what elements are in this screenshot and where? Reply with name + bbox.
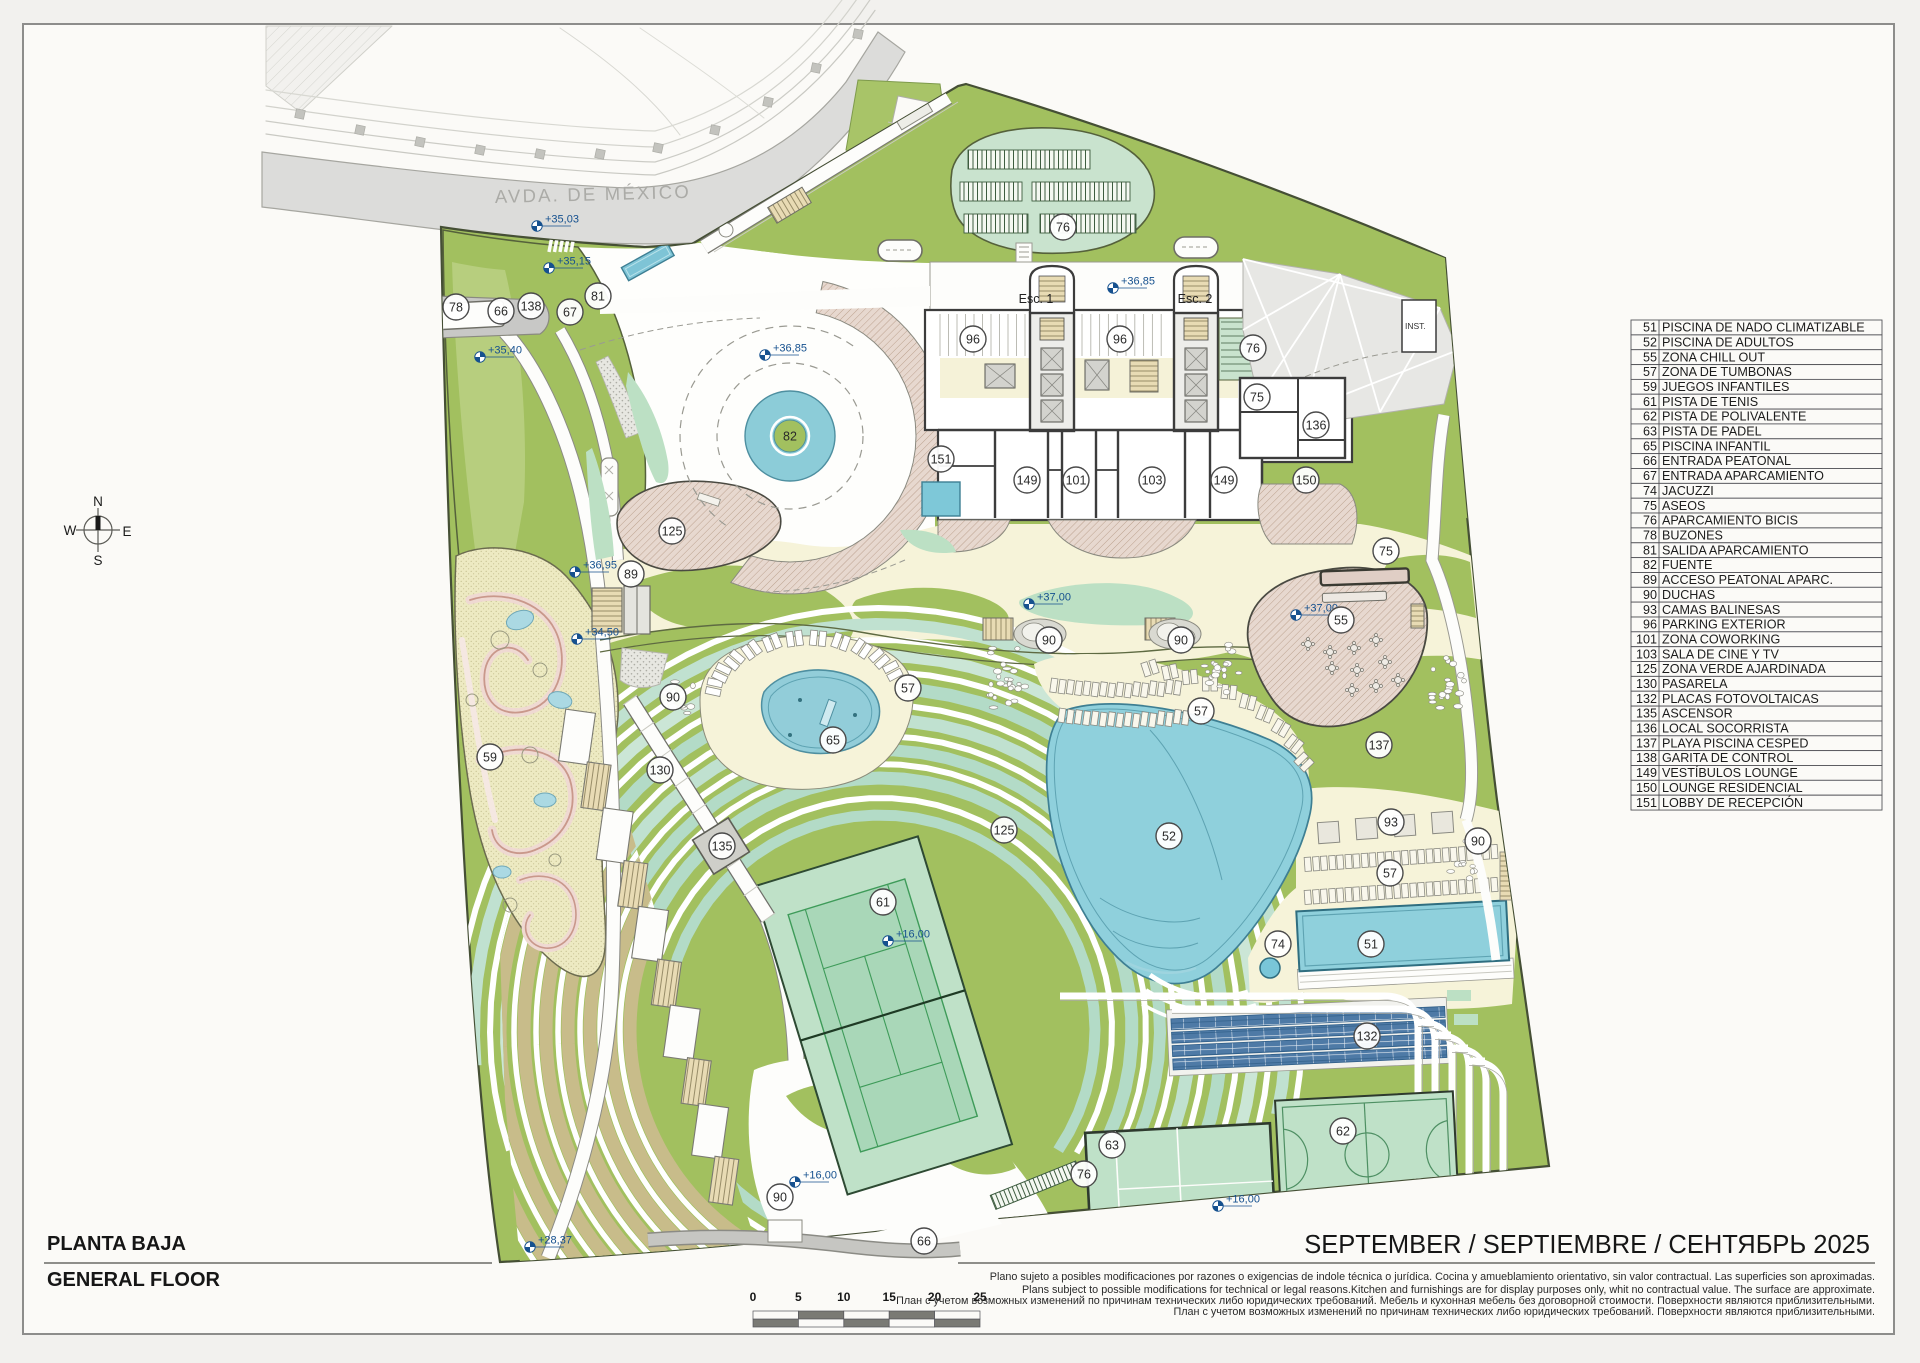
svg-text:89: 89 [624, 567, 638, 581]
svg-text:+35,03: +35,03 [545, 214, 579, 226]
svg-text:136: 136 [1636, 722, 1657, 736]
svg-text:90: 90 [1643, 588, 1657, 602]
svg-text:+36,85: +36,85 [1121, 276, 1155, 288]
svg-text:+16,00: +16,00 [803, 1170, 837, 1182]
svg-text:130: 130 [1636, 677, 1657, 691]
svg-text:+35,40: +35,40 [488, 345, 522, 357]
svg-text:APARCAMIENTO BICIS: APARCAMIENTO BICIS [1662, 514, 1798, 528]
svg-text:89: 89 [1643, 573, 1657, 587]
svg-text:125: 125 [662, 524, 683, 538]
svg-text:135: 135 [712, 839, 733, 853]
svg-text:PISCINA DE ADULTOS: PISCINA DE ADULTOS [1662, 336, 1794, 350]
svg-text:151: 151 [1636, 796, 1657, 810]
svg-text:96: 96 [966, 332, 980, 346]
svg-text:10: 10 [837, 1290, 851, 1304]
svg-text:ZONA COWORKING: ZONA COWORKING [1662, 632, 1780, 646]
svg-text:96: 96 [1643, 618, 1657, 632]
svg-text:ZONA VERDE AJARDINADA: ZONA VERDE AJARDINADA [1662, 662, 1826, 676]
svg-text:138: 138 [1636, 751, 1657, 765]
svg-text:57: 57 [1643, 365, 1657, 379]
svg-text:125: 125 [994, 823, 1015, 837]
svg-text:52: 52 [1162, 829, 1176, 843]
svg-text:План с учетом возможных измене: План с учетом возможных изменений по при… [1173, 1306, 1875, 1318]
svg-text:GENERAL FLOOR: GENERAL FLOOR [47, 1269, 221, 1291]
svg-text:63: 63 [1105, 1138, 1119, 1152]
svg-text:BUZONES: BUZONES [1662, 529, 1723, 543]
svg-text:PISCINA INFANTIL: PISCINA INFANTIL [1662, 439, 1770, 453]
svg-text:0: 0 [750, 1290, 757, 1304]
svg-text:150: 150 [1296, 473, 1317, 487]
svg-text:PISTA DE TENIS: PISTA DE TENIS [1662, 395, 1758, 409]
svg-text:103: 103 [1636, 647, 1657, 661]
svg-text:151: 151 [931, 452, 952, 466]
svg-text:+28,37: +28,37 [538, 1235, 572, 1247]
svg-text:76: 76 [1643, 514, 1657, 528]
svg-text:93: 93 [1384, 815, 1398, 829]
svg-text:76: 76 [1246, 341, 1260, 355]
svg-text:57: 57 [1194, 704, 1208, 718]
svg-text:61: 61 [1643, 395, 1657, 409]
svg-text:SALA DE CINE Y TV: SALA DE CINE Y TV [1662, 647, 1779, 661]
svg-text:74: 74 [1271, 937, 1285, 951]
svg-text:+37,00: +37,00 [1037, 592, 1071, 604]
svg-text:125: 125 [1636, 662, 1657, 676]
svg-text:81: 81 [591, 289, 605, 303]
svg-text:57: 57 [901, 681, 915, 695]
svg-text:81: 81 [1643, 543, 1657, 557]
svg-text:PISTA DE POLIVALENTE: PISTA DE POLIVALENTE [1662, 410, 1806, 424]
svg-text:55: 55 [1643, 350, 1657, 364]
svg-text:66: 66 [917, 1234, 931, 1248]
svg-text:76: 76 [1077, 1167, 1091, 1181]
svg-text:78: 78 [449, 300, 463, 314]
svg-text:130: 130 [650, 763, 671, 777]
svg-text:66: 66 [494, 304, 508, 318]
svg-text:JACUZZI: JACUZZI [1662, 484, 1714, 498]
svg-text:59: 59 [1643, 380, 1657, 394]
svg-text:+16,00: +16,00 [1226, 1194, 1260, 1206]
svg-text:149: 149 [1214, 473, 1235, 487]
svg-text:+36,85: +36,85 [773, 343, 807, 355]
svg-text:61: 61 [876, 895, 890, 909]
svg-text:5: 5 [795, 1290, 802, 1304]
svg-text:PARKING EXTERIOR: PARKING EXTERIOR [1662, 618, 1786, 632]
svg-text:137: 137 [1369, 738, 1390, 752]
svg-text:57: 57 [1383, 866, 1397, 880]
svg-text:82: 82 [783, 430, 797, 444]
svg-text:ASEOS: ASEOS [1662, 499, 1705, 513]
svg-text:132: 132 [1357, 1029, 1378, 1043]
svg-text:SEPTEMBER / SEPTIEMBRE / СЕНТЯ: SEPTEMBER / SEPTIEMBRE / СЕНТЯБРЬ 2025 [1304, 1231, 1870, 1259]
svg-text:135: 135 [1636, 707, 1657, 721]
svg-text:PLACAS FOTOVOLTAICAS: PLACAS FOTOVOLTAICAS [1662, 692, 1819, 706]
svg-text:62: 62 [1336, 1124, 1350, 1138]
svg-text:62: 62 [1643, 410, 1657, 424]
svg-text:JUEGOS INFANTILES: JUEGOS INFANTILES [1662, 380, 1789, 394]
svg-text:55: 55 [1334, 613, 1348, 627]
svg-text:65: 65 [1643, 439, 1657, 453]
svg-text:101: 101 [1066, 473, 1087, 487]
svg-text:+34,50: +34,50 [585, 627, 619, 639]
svg-text:103: 103 [1142, 473, 1163, 487]
svg-text:N: N [93, 494, 103, 509]
svg-text:136: 136 [1306, 418, 1327, 432]
svg-text:75: 75 [1250, 390, 1264, 404]
svg-text:75: 75 [1379, 544, 1393, 558]
svg-text:75: 75 [1643, 499, 1657, 513]
svg-text:51: 51 [1364, 937, 1378, 951]
svg-text:FUENTE: FUENTE [1662, 558, 1712, 572]
svg-text:149: 149 [1636, 766, 1657, 780]
svg-text:82: 82 [1643, 558, 1657, 572]
svg-text:LOUNGE RESIDENCIAL: LOUNGE RESIDENCIAL [1662, 781, 1803, 795]
svg-text:90: 90 [1174, 633, 1188, 647]
svg-text:51: 51 [1643, 321, 1657, 335]
svg-text:S: S [93, 553, 102, 568]
svg-text:SALIDA APARCAMIENTO: SALIDA APARCAMIENTO [1662, 543, 1809, 557]
svg-text:GARITA DE CONTROL: GARITA DE CONTROL [1662, 751, 1793, 765]
svg-text:52: 52 [1643, 336, 1657, 350]
svg-text:VESTÍBULOS LOUNGE: VESTÍBULOS LOUNGE [1662, 765, 1798, 780]
svg-text:90: 90 [1042, 633, 1056, 647]
svg-text:150: 150 [1636, 781, 1657, 795]
svg-text:Esc. 1: Esc. 1 [1019, 292, 1054, 306]
svg-text:74: 74 [1643, 484, 1657, 498]
svg-text:CAMAS BALINESAS: CAMAS BALINESAS [1662, 603, 1780, 617]
svg-text:PLAYA PISCINA CESPED: PLAYA PISCINA CESPED [1662, 736, 1809, 750]
svg-text:Plano sujeto a posibles modifi: Plano sujeto a posibles modificaciones p… [990, 1271, 1875, 1283]
svg-text:93: 93 [1643, 603, 1657, 617]
svg-text:78: 78 [1643, 529, 1657, 543]
svg-text:15: 15 [883, 1290, 897, 1304]
svg-text:+36,95: +36,95 [583, 560, 617, 572]
svg-text:PASARELA: PASARELA [1662, 677, 1728, 691]
svg-text:PISCINA DE NADO CLIMATIZABLE: PISCINA DE NADO CLIMATIZABLE [1662, 321, 1865, 335]
svg-text:LOCAL SOCORRISTA: LOCAL SOCORRISTA [1662, 722, 1789, 736]
svg-text:Esc. 2: Esc. 2 [1178, 292, 1213, 306]
svg-text:59: 59 [483, 750, 497, 764]
svg-text:63: 63 [1643, 425, 1657, 439]
svg-text:101: 101 [1636, 632, 1657, 646]
svg-text:65: 65 [826, 733, 840, 747]
svg-text:LOBBY DE RECEPCIÓN: LOBBY DE RECEPCIÓN [1662, 795, 1803, 810]
svg-text:90: 90 [666, 690, 680, 704]
svg-text:ENTRADA APARCAMIENTO: ENTRADA APARCAMIENTO [1662, 469, 1824, 483]
svg-text:137: 137 [1636, 736, 1657, 750]
svg-text:90: 90 [773, 1190, 787, 1204]
svg-text:132: 132 [1636, 692, 1657, 706]
svg-text:138: 138 [521, 299, 542, 313]
svg-text:DUCHAS: DUCHAS [1662, 588, 1715, 602]
svg-text:+35,15: +35,15 [557, 256, 591, 268]
svg-text:67: 67 [563, 305, 577, 319]
svg-text:W: W [64, 523, 77, 538]
svg-text:66: 66 [1643, 454, 1657, 468]
svg-text:PISTA DE PADEL: PISTA DE PADEL [1662, 425, 1762, 439]
svg-text:90: 90 [1471, 834, 1485, 848]
svg-text:149: 149 [1017, 473, 1038, 487]
svg-text:ASCENSOR: ASCENSOR [1662, 707, 1733, 721]
svg-text:67: 67 [1643, 469, 1657, 483]
svg-text:INST.: INST. [1405, 321, 1426, 331]
svg-text:96: 96 [1113, 332, 1127, 346]
svg-text:ZONA CHILL OUT: ZONA CHILL OUT [1662, 350, 1765, 364]
svg-text:ACCESO PEATONAL APARC.: ACCESO PEATONAL APARC. [1662, 573, 1833, 587]
svg-text:E: E [122, 524, 131, 539]
svg-text:ENTRADA PEATONAL: ENTRADA PEATONAL [1662, 454, 1791, 468]
svg-text:PLANTA BAJA: PLANTA BAJA [47, 1233, 186, 1255]
svg-text:76: 76 [1056, 220, 1070, 234]
svg-text:+16,00: +16,00 [896, 929, 930, 941]
svg-text:ZONA DE TUMBONAS: ZONA DE TUMBONAS [1662, 365, 1792, 379]
